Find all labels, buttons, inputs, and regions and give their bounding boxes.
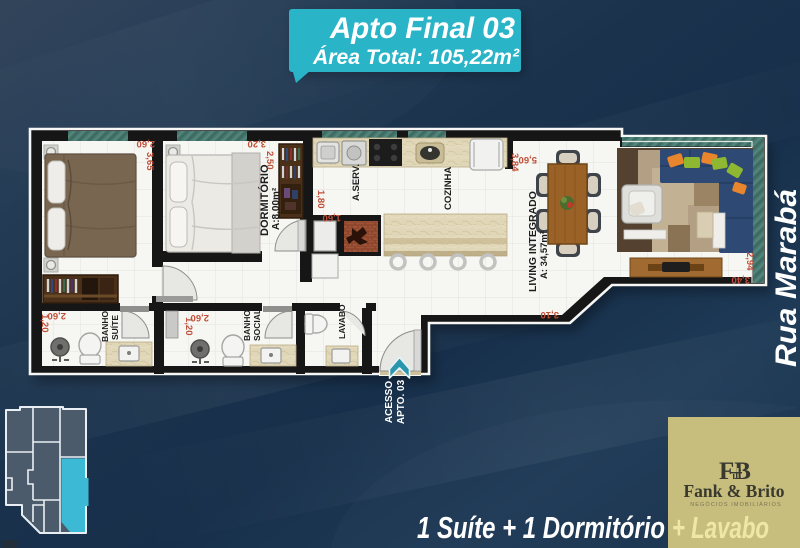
svg-text:BANHO: BANHO <box>242 309 252 341</box>
svg-text:2,60: 2,60 <box>137 138 156 149</box>
svg-text:3,10: 3,10 <box>541 309 560 320</box>
svg-text:Apto Final 03: Apto Final 03 <box>329 12 515 45</box>
svg-text:A: 34,57m²: A: 34,57m² <box>539 231 550 279</box>
svg-text:Área Total: 105,22m²: Área Total: 105,22m² <box>312 44 520 69</box>
svg-text:3,20: 3,20 <box>248 138 267 149</box>
svg-text:BANHO: BANHO <box>100 310 110 342</box>
svg-text:APTO. 03: APTO. 03 <box>396 379 407 424</box>
svg-text:SUÍTE: SUÍTE <box>110 315 120 340</box>
svg-text:LAVABO: LAVABO <box>337 304 347 339</box>
svg-text:5,60: 5,60 <box>519 154 538 165</box>
svg-text:Rua Marabá: Rua Marabá <box>770 189 800 367</box>
svg-text:Fank & Brito: Fank & Brito <box>683 481 784 501</box>
svg-text:1,20: 1,20 <box>183 317 194 336</box>
svg-text:3,65: 3,65 <box>144 152 155 171</box>
svg-text:COZINHA: COZINHA <box>443 167 454 210</box>
svg-text:1 Suíte + 1 Dormitório: 1 Suíte + 1 Dormitório <box>417 510 665 545</box>
svg-text:DORMITÓRIO: DORMITÓRIO <box>258 164 271 236</box>
svg-text:1,80: 1,80 <box>315 190 326 209</box>
svg-text:ACESSO: ACESSO <box>384 381 395 423</box>
svg-text:1,60: 1,60 <box>323 212 342 223</box>
svg-text:+ Lavabo: + Lavabo <box>672 510 769 545</box>
svg-text:3,40: 3,40 <box>732 274 751 285</box>
svg-text:SOCIAL: SOCIAL <box>252 309 262 341</box>
svg-text:A.SERV.: A.SERV. <box>351 164 362 201</box>
svg-text:LIVING INTEGRADO: LIVING INTEGRADO <box>527 191 539 292</box>
svg-text:1,20: 1,20 <box>39 314 50 333</box>
svg-text:2,94: 2,94 <box>744 252 755 271</box>
svg-text:A:8,00m²: A:8,00m² <box>271 187 282 230</box>
svg-text:NEGÓCIOS IMOBILIÁRIOS: NEGÓCIOS IMOBILIÁRIOS <box>690 501 782 508</box>
svg-text:3,84: 3,84 <box>509 153 520 172</box>
svg-text:2,50: 2,50 <box>264 151 275 170</box>
